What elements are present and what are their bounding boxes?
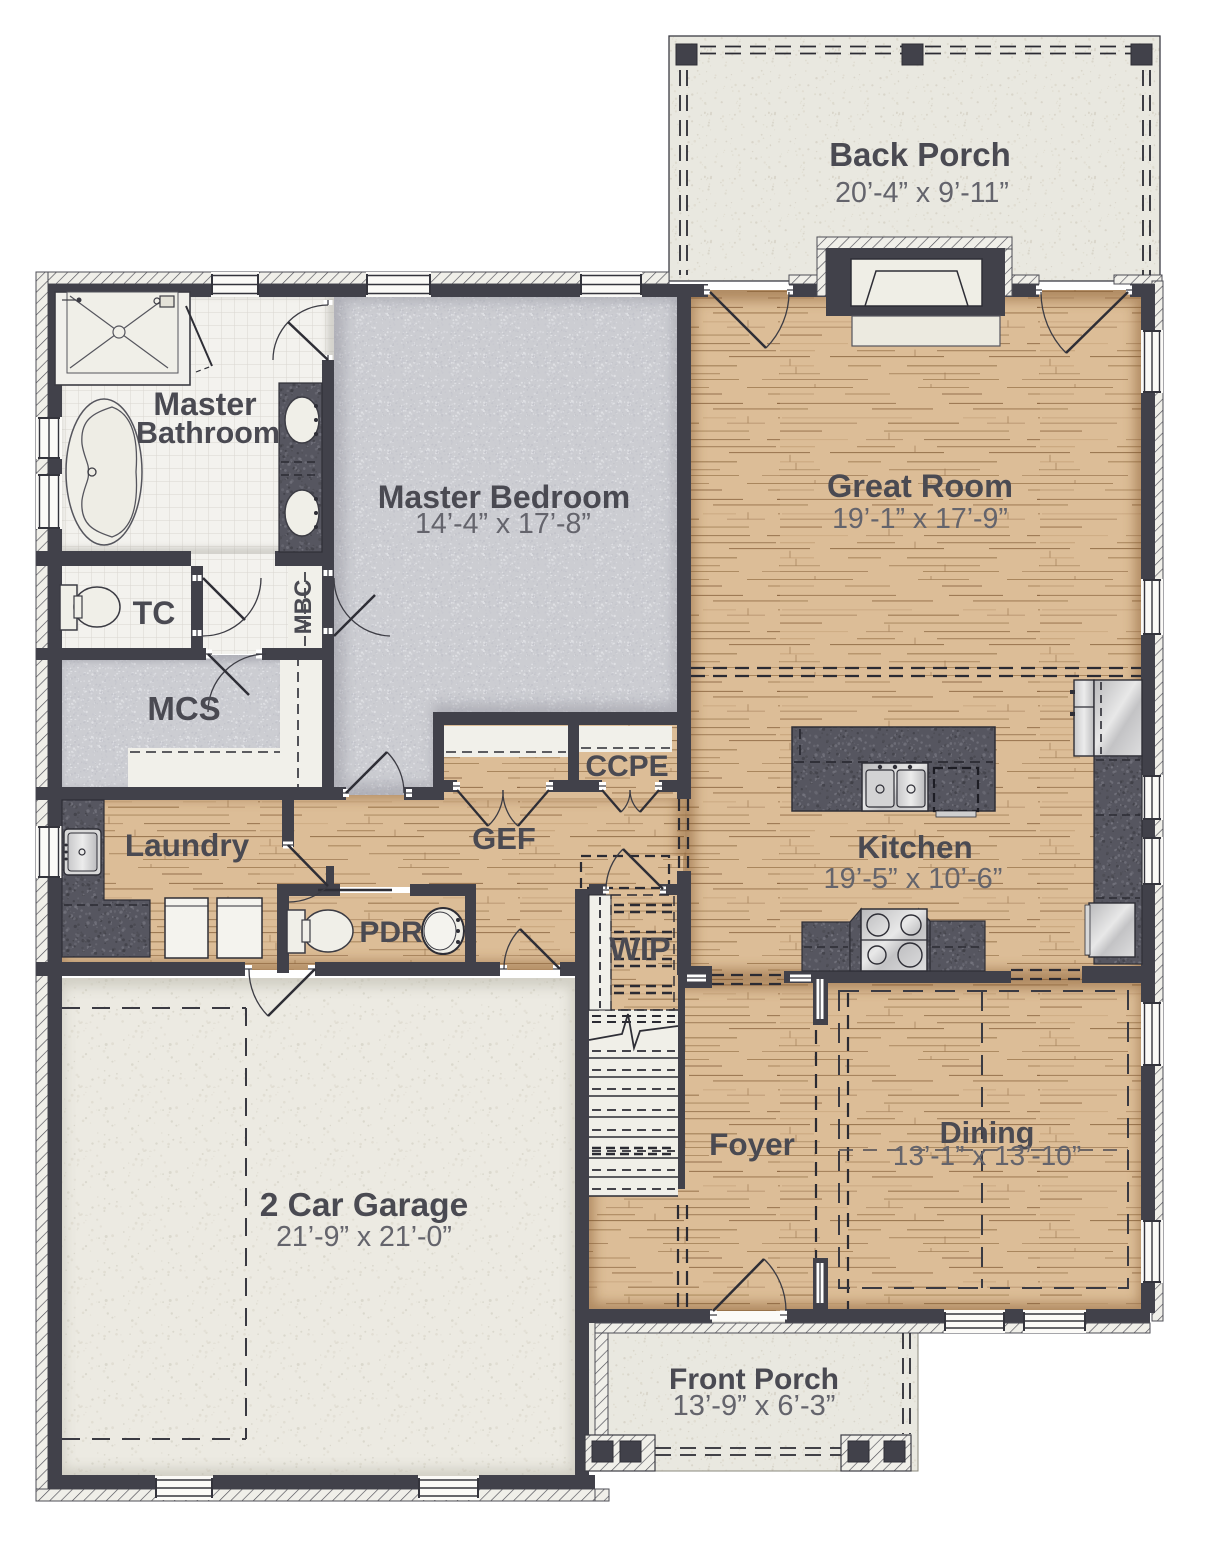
svg-text:Foyer: Foyer: [709, 1126, 795, 1162]
svg-text:19’-5” x 10’-6”: 19’-5” x 10’-6”: [824, 863, 1003, 895]
svg-text:Kitchen: Kitchen: [857, 829, 973, 865]
svg-text:13’-9” x 6’-3”: 13’-9” x 6’-3”: [673, 1390, 836, 1422]
svg-text:19’-1” x 17’-9”: 19’-1” x 17’-9”: [832, 503, 1008, 535]
svg-text:GEF: GEF: [472, 821, 536, 856]
svg-text:13’-1” x 13’-10”: 13’-1” x 13’-10”: [893, 1140, 1081, 1171]
svg-text:TC: TC: [133, 595, 176, 631]
svg-text:Back Porch: Back Porch: [829, 136, 1011, 173]
svg-text:PDR: PDR: [359, 916, 423, 949]
svg-text:14’-4” x 17’-8”: 14’-4” x 17’-8”: [415, 508, 591, 540]
svg-text:21’-9” x 21’-0”: 21’-9” x 21’-0”: [276, 1221, 452, 1253]
svg-text:WIP: WIP: [609, 931, 670, 967]
svg-text:Great Room: Great Room: [827, 468, 1013, 504]
svg-text:Bathroom: Bathroom: [136, 416, 280, 450]
svg-text:MCS: MCS: [147, 690, 220, 727]
svg-text:MBC: MBC: [290, 580, 317, 635]
svg-text:CCPE: CCPE: [585, 750, 668, 783]
svg-text:Laundry: Laundry: [125, 827, 250, 863]
svg-text:2 Car Garage: 2 Car Garage: [260, 1187, 469, 1224]
svg-text:20’-4” x 9’-11”: 20’-4” x 9’-11”: [835, 177, 1009, 209]
